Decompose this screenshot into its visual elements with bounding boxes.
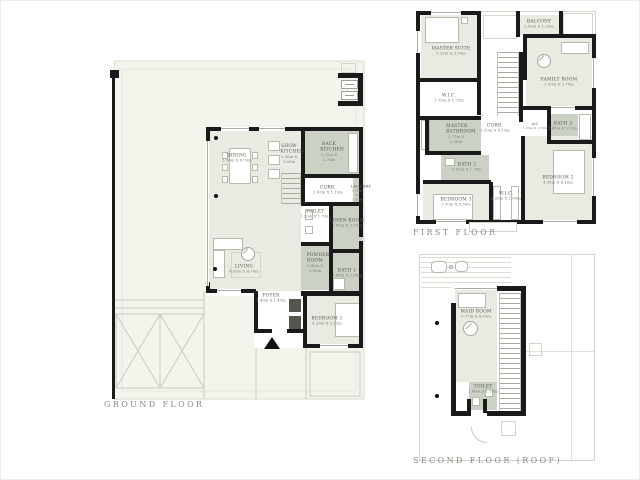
foyer-closet (289, 299, 301, 312)
room-label-ac: A/C1.35m X 1.70m (523, 122, 547, 131)
terrace (483, 15, 517, 39)
entrance-arrow-icon (264, 337, 280, 349)
wall (206, 127, 210, 141)
dining-chair (252, 152, 258, 159)
staircase (281, 173, 301, 204)
dining-chair (222, 164, 228, 171)
ac-unit (455, 261, 468, 272)
room-label-bath3: BATH 31.48m X 2.90m (548, 121, 578, 132)
bed (425, 17, 459, 43)
wall (301, 174, 363, 178)
window (592, 58, 596, 88)
wall (519, 52, 523, 122)
kitchen-island (268, 141, 280, 151)
wall (301, 242, 331, 246)
utility-meter-box (341, 63, 356, 73)
utility-box-text (345, 95, 354, 97)
second-floor-plan: MAID ROOM2.77m X 4.00m TOILET1.40m X 1.5… (411, 251, 601, 466)
toilet-fixture (472, 397, 480, 406)
wall (425, 120, 429, 154)
second-floor-title: SECOND FLOOR (ROOF) (413, 456, 562, 465)
wall (425, 151, 481, 155)
staircase (499, 293, 521, 411)
wall (487, 411, 526, 416)
nightstand (461, 17, 468, 24)
room-label-master-suite: MASTER SUITE5.20m X 3.50m (432, 46, 471, 57)
room-label-family: FAMILY ROOM3.50m X 3.70m (541, 77, 577, 88)
window (543, 220, 577, 224)
room-label-wic2: W.I.C.2.26m X 1.00m (491, 191, 521, 202)
room-label-corr: CORR.5.10m X 4.15m (480, 123, 510, 134)
boundary-wall (112, 76, 115, 399)
utility-box-text (345, 84, 354, 86)
room-label-show-kitchen: SHOW KITCHEN2.30m X 3.00m (280, 143, 298, 164)
room-label-powder: POWDER ROOM1.40m X 1.90m (307, 252, 324, 273)
window (416, 31, 420, 53)
window (592, 158, 596, 196)
window (320, 344, 348, 348)
ceiling-fan-icon (463, 321, 478, 336)
window (416, 194, 420, 216)
room-label-bath1: BATH 11.80m X 2.80m (332, 268, 362, 279)
wall (329, 249, 363, 253)
room-label-bath2: BATH 23.05m X 1.75m (452, 162, 482, 173)
wall (523, 38, 527, 80)
window (259, 127, 285, 131)
room-label-wic1: W.I.C.1.75m X 1.75m (434, 93, 464, 104)
skylight (529, 343, 542, 356)
wall (359, 241, 363, 348)
skylight (501, 421, 516, 436)
terrace (563, 13, 593, 35)
wall (516, 11, 520, 37)
ground-floor-title: GROUND FLOOR (104, 400, 204, 409)
column-dot (214, 194, 218, 198)
window (217, 289, 241, 293)
window (206, 141, 209, 286)
plan-sheet: DINING3.90m X 4.70m SHOW KITCHEN2.30m X … (0, 0, 640, 480)
wall (451, 303, 456, 416)
wall (423, 180, 491, 184)
utility-box (341, 80, 358, 89)
room-label-dining: DINING3.90m X 4.70m (222, 153, 252, 164)
sofa (213, 238, 243, 250)
staircase (497, 52, 519, 116)
utility-wall (358, 73, 363, 106)
column-dot (435, 394, 439, 398)
kitchen-island (268, 155, 280, 165)
bed (553, 150, 585, 194)
wall (489, 182, 493, 222)
window (431, 11, 461, 15)
column-dot (214, 136, 218, 140)
room-label-bedroom3: BEDROOM 33.30m X 3.50m (440, 197, 471, 208)
ceiling-fan-icon (241, 247, 255, 261)
room-label-corridor: CORR.2.47m X 1.10m (313, 185, 343, 196)
column-dot (435, 321, 439, 325)
dining-chair (222, 176, 228, 183)
first-floor-title: FIRST FLOOR (413, 228, 498, 237)
room-label-balcony: BALCONY3.00m X 1.20m (524, 19, 554, 30)
wall (521, 286, 526, 416)
bed (458, 293, 486, 308)
room-label-roof-toilet: TOILET1.40m X 1.50m (468, 384, 498, 395)
window (455, 287, 497, 290)
room-label-bedroom2: BEDROOM 24.35m X 4.10m (542, 175, 573, 186)
room-label-foyer: FOYER1.40m X 1.45m (256, 293, 286, 304)
room-label-back-kitchen: BACK KITCHEN2.75m X 2.70m (320, 141, 338, 162)
wall (301, 291, 363, 296)
sofa (561, 42, 589, 54)
utility-box (341, 91, 358, 100)
room-label-laundry: LAUNDRY0.75m X 1.50m (351, 185, 364, 202)
wall (523, 34, 596, 38)
wall (254, 329, 272, 333)
window (221, 127, 249, 131)
room-label-linen: LINEN ROOM1.80m X 2.90m (330, 218, 364, 229)
dining-chair (252, 164, 258, 171)
wall (547, 140, 596, 144)
dining-chair (252, 176, 258, 183)
wall (477, 15, 481, 115)
foyer-closet (289, 316, 301, 329)
wall (521, 136, 525, 221)
window (551, 106, 575, 110)
sofa (213, 250, 225, 278)
wall (467, 399, 471, 413)
room-label-toilet: TOILET1.20m X 1.70m (300, 209, 330, 220)
bath-fixture (333, 278, 345, 290)
room-label-living: LIVING4.09m X 4.70m (229, 264, 259, 275)
ground-floor-plan: DINING3.90m X 4.70m SHOW KITCHEN2.30m X … (101, 56, 371, 406)
first-floor-plan: MASTER SUITE5.20m X 3.50m BALCONY3.00m X… (411, 6, 601, 236)
ceiling-fan-icon (537, 54, 551, 68)
kitchen-counter (348, 133, 358, 173)
ac-unit (431, 261, 447, 273)
room-label-master-bath: MASTER BATHROOM2.77m X 2.60m (446, 123, 466, 144)
basin-fixture (305, 226, 313, 234)
window (436, 220, 466, 224)
column-dot (213, 267, 217, 271)
kitchen-island (268, 169, 280, 179)
room-label-maid: MAID ROOM2.77m X 4.00m (460, 309, 491, 320)
vent-circle-icon (449, 265, 453, 269)
wall (303, 296, 307, 348)
wall (419, 78, 481, 82)
vanity (579, 114, 591, 140)
room-label-bedroom1: BEDROOM 14.25m X 3.15m (311, 316, 342, 327)
